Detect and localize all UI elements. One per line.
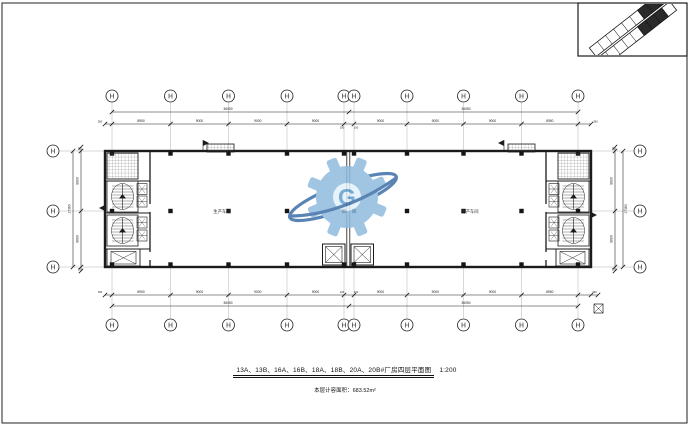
- dim-label: 9000: [312, 290, 320, 294]
- dim-label: 8680: [610, 177, 614, 185]
- dim-label: 9000: [254, 290, 262, 294]
- title-block: 13A、13B、16A、16B、18A、18B、20A、20B#厂房四层平面图1…: [0, 364, 690, 374]
- drawing-sheet: G: [0, 0, 690, 426]
- door-flag-icon: [99, 205, 105, 211]
- dim-label: 360: [592, 290, 597, 294]
- room-label-left: 生产车间: [213, 208, 230, 215]
- dim-label: 9000: [312, 119, 320, 123]
- dim-label: 8680: [610, 235, 614, 243]
- door-flag-icon: [591, 212, 597, 218]
- dim-label: 8950: [137, 119, 145, 123]
- canopy: [207, 144, 234, 152]
- dim-label: 8950: [546, 119, 554, 123]
- dim-label: 9000: [377, 119, 385, 123]
- dim-label: 9000: [196, 119, 204, 123]
- dim-label: 36050: [461, 301, 470, 305]
- dim-label: 9000: [432, 290, 440, 294]
- dim-label: 9000: [377, 290, 385, 294]
- dim-label: 9000: [489, 119, 497, 123]
- drawing-title: 13A、13B、16A、16B、18A、18B、20A、20B#厂房四层平面图: [233, 367, 434, 378]
- dim-label: 100: [340, 126, 345, 130]
- dim-label: 36050: [223, 301, 232, 305]
- dim-label: 9000: [489, 290, 497, 294]
- area-note: 本层计容面积：683.52m²: [0, 386, 690, 394]
- detail-marker: [594, 304, 603, 313]
- dim-label: 8950: [546, 290, 554, 294]
- dim-label: 36050: [461, 107, 470, 111]
- drawing-scale: 1:200: [439, 367, 456, 374]
- canopy: [508, 144, 535, 152]
- door-flag-icon: [498, 140, 504, 146]
- dim-label: 360: [593, 119, 598, 123]
- dim-label: 9000: [196, 290, 204, 294]
- site-key-plan: [578, 0, 687, 67]
- dim-label: 8680: [76, 235, 80, 243]
- dim-label: 100: [340, 290, 345, 294]
- dim-label: 17360: [68, 204, 72, 213]
- dim-label: 360: [98, 290, 103, 294]
- dim-label: 100: [354, 126, 359, 130]
- floor-plan-canvas: G: [0, 0, 690, 426]
- dim-label: 100: [354, 290, 359, 294]
- dim-label: 9000: [254, 119, 262, 123]
- dim-label: 8950: [137, 290, 145, 294]
- dim-label: 8680: [76, 177, 80, 185]
- dim-label: 36050: [223, 107, 232, 111]
- dim-label: 9000: [432, 119, 440, 123]
- room-label-right: 生产车间: [461, 208, 478, 215]
- dim-label: 360: [98, 119, 103, 123]
- dim-label: 17360: [624, 204, 628, 213]
